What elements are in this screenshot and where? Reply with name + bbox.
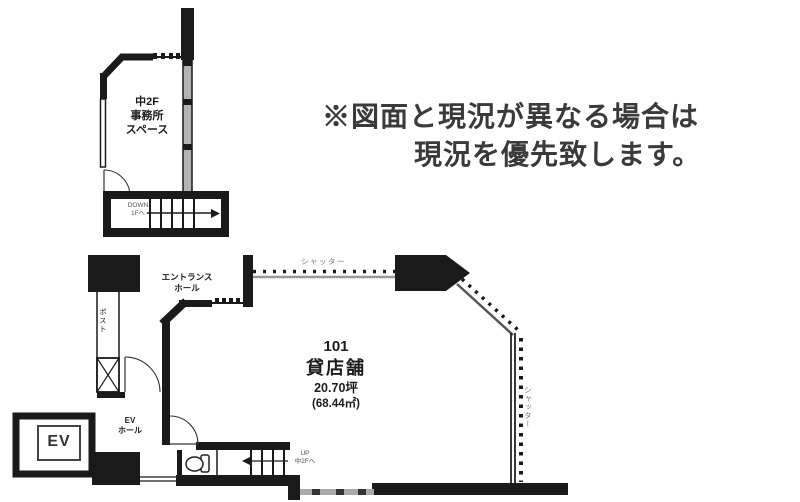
wc-left-wall [177,450,182,476]
wall-stub-top [181,8,194,60]
mezzanine-stairs-note: DOWN 1Fへ [120,202,156,218]
bottom-opening-tick [312,489,320,495]
shutter-right-label: シャッター [523,386,532,429]
unit-info: 101 貸店舗 20.70坪 (68.44㎡) [295,338,377,411]
mezzanine-room-line2: 事務所 [112,110,182,124]
window-tick [153,53,157,59]
bottom-opening-tick [358,489,366,495]
window-wall-right [183,57,192,194]
mezzanine-room-line3: スペース [112,124,182,138]
window-tick [176,53,180,59]
shutter-ticks-diagonal [462,279,518,330]
direction-arrow-icon [242,457,250,465]
stairs-top-wall [103,191,229,199]
window-tick [229,298,233,304]
elevator-hall-label: EV ホール [98,416,162,436]
toilet-icon [186,457,203,471]
window-tick [236,298,240,304]
disclaimer-line-2: 現況を優先致します。 [414,137,701,172]
stair-steps [251,450,284,475]
stairs-direction-label: DOWN [120,202,156,210]
shutter-line-diagonal [457,284,513,335]
floor-plan-page: ※図面と現況が異なる場合は 現況を優先致します。 中2F 事務所 スペース DO… [0,0,800,502]
stairs-destination-label: 1Fへ [120,210,156,218]
window-tick [169,53,173,59]
unit-type: 貸店舗 [295,357,377,380]
mezzanine-room-label: 中2F 事務所 スペース [112,96,182,137]
door-arc-icon [125,357,160,392]
stairs-direction-label: UP [284,450,326,458]
main-stairs-note: UP 中2Fへ [284,450,326,466]
stairs-right-wall [221,191,229,237]
bottom-wall-stairs [176,475,300,486]
wall-left-upper [100,73,107,99]
unit-area-sqm: (68.44㎡) [295,397,377,411]
window-tick [222,298,226,304]
unit-area-tsubo: 20.70坪 [295,381,377,397]
entrance-hall-line1: エントランス [155,272,219,283]
mezzanine-room-line1: 中2F [112,96,182,110]
wall-cap [183,57,192,66]
pillar-bottom-left [92,452,140,485]
bottom-opening-tick [336,489,344,495]
entrance-wall [179,300,212,307]
entrance-hall-line2: ホール [155,283,219,294]
unit-number: 101 [295,338,377,357]
pillar-top-left [88,255,140,292]
wall-chamfer-top-left [103,57,153,77]
mullion-tick [183,99,192,105]
entrance-hall-label: エントランス ホール [155,272,219,293]
mailbox-label: ポスト [98,308,107,334]
elevator-label: EV [38,432,80,452]
mullion-tick [183,144,192,150]
shop-left-wall [162,318,170,445]
stairs-bottom-wall [103,228,229,237]
stairs-left-wall [103,191,111,237]
window-tick [215,298,219,304]
elevator-hall-line2: ホール [98,426,162,436]
window-wall-left [101,99,106,167]
stairs-top-wall [196,442,290,450]
stairs-destination-label: 中2Fへ [284,458,326,466]
disclaimer-line-1: ※図面と現況が異なる場合は [322,99,699,134]
shutter-top-label: シャッター [301,257,346,266]
door-arc-icon [170,416,198,444]
elevator-hall-line1: EV [98,416,162,426]
ev-hall-top-wall [97,392,125,398]
window-tick [161,53,165,59]
direction-arrow-icon [211,209,220,218]
entrance-right-wall [243,255,253,307]
bottom-wall-right [372,483,568,495]
